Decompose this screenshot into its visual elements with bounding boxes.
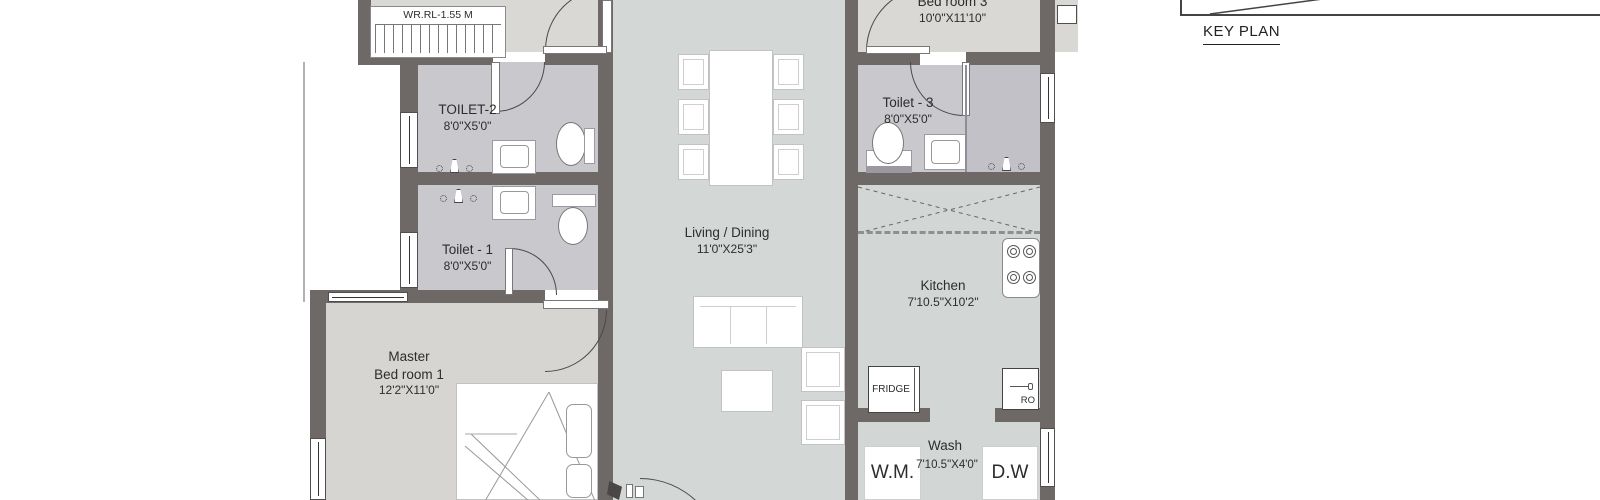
door-frame	[626, 484, 633, 498]
wardrobe-label: WR.RL-1.55 M	[371, 9, 505, 23]
window	[310, 438, 326, 500]
toilet-wc-fixture	[872, 122, 904, 164]
dining-chair	[773, 99, 804, 135]
door-leaf	[543, 300, 609, 309]
window	[400, 232, 418, 288]
master-bedroom-label: Master Bed room 1 12'2"X11'0"	[330, 348, 488, 399]
washbasin-fixture	[492, 186, 536, 220]
coffee-table	[721, 370, 773, 412]
washbasin-fixture	[924, 134, 966, 170]
dining-chair	[678, 54, 709, 90]
washbasin-fixture	[492, 140, 536, 174]
wall-segment	[598, 0, 613, 500]
window	[1040, 73, 1055, 123]
shower-icon	[988, 156, 1028, 174]
window	[1057, 5, 1077, 24]
floor-plan: WR.RL-1.55 M	[0, 0, 1600, 500]
window	[400, 112, 418, 168]
ro-unit: RO	[1002, 368, 1039, 410]
wash-dims-label: 7'10.5"X4'0"	[891, 458, 1003, 473]
pillow	[566, 464, 592, 498]
wash-label: Wash	[895, 437, 995, 455]
shower-partition	[965, 65, 967, 172]
ro-label: RO	[1003, 395, 1035, 407]
toilet-wc-fixture	[558, 207, 588, 245]
dining-chair	[773, 54, 804, 90]
shower-icon	[436, 158, 476, 176]
door-leaf	[543, 46, 607, 54]
dining-table	[709, 50, 773, 186]
armchair	[801, 400, 845, 445]
exterior-edge-line	[303, 62, 305, 302]
kitchen-counter-dashline	[858, 231, 1040, 234]
pillow	[566, 404, 592, 458]
kitchen-loft-cross	[858, 185, 1040, 235]
window	[328, 292, 408, 302]
toilet1-label: Toilet - 1 8'0"X5'0"	[420, 241, 515, 274]
bedroom3-label: Bed room 3 10'0"X11'10"	[880, 0, 1025, 26]
fridge-label: FRIDGE	[869, 383, 913, 396]
toilet-wc-tank	[552, 194, 596, 207]
toilet3-label: Toilet - 3 8'0"X5'0"	[858, 94, 958, 127]
key-plan-label: KEY PLAN	[1203, 22, 1293, 45]
living-dining-label: Living / Dining 11'0"X25'3"	[648, 224, 806, 257]
door-frame	[635, 486, 644, 498]
toilet-wc-tank	[584, 128, 595, 164]
shower-icon	[440, 188, 480, 206]
toilet-wc-pedestal	[866, 166, 912, 173]
toilet-wc-fixture	[556, 122, 586, 166]
sofa	[693, 296, 803, 348]
door-leaf	[866, 46, 930, 54]
wall-segment	[845, 0, 858, 500]
dining-chair	[678, 99, 709, 135]
dining-chair	[773, 144, 804, 180]
kitchen-label: Kitchen 7'10.5"X10'2"	[868, 277, 1018, 310]
toilet2-label: TOILET-2 8'0"X5'0"	[420, 101, 515, 134]
dining-chair	[678, 144, 709, 180]
key-plan-diagonal	[1200, 0, 1600, 16]
fridge-box: FRIDGE	[868, 366, 920, 413]
window	[1040, 428, 1055, 487]
wardrobe-hatch	[375, 24, 501, 53]
armchair	[801, 347, 845, 392]
wardrobe: WR.RL-1.55 M	[370, 6, 506, 58]
